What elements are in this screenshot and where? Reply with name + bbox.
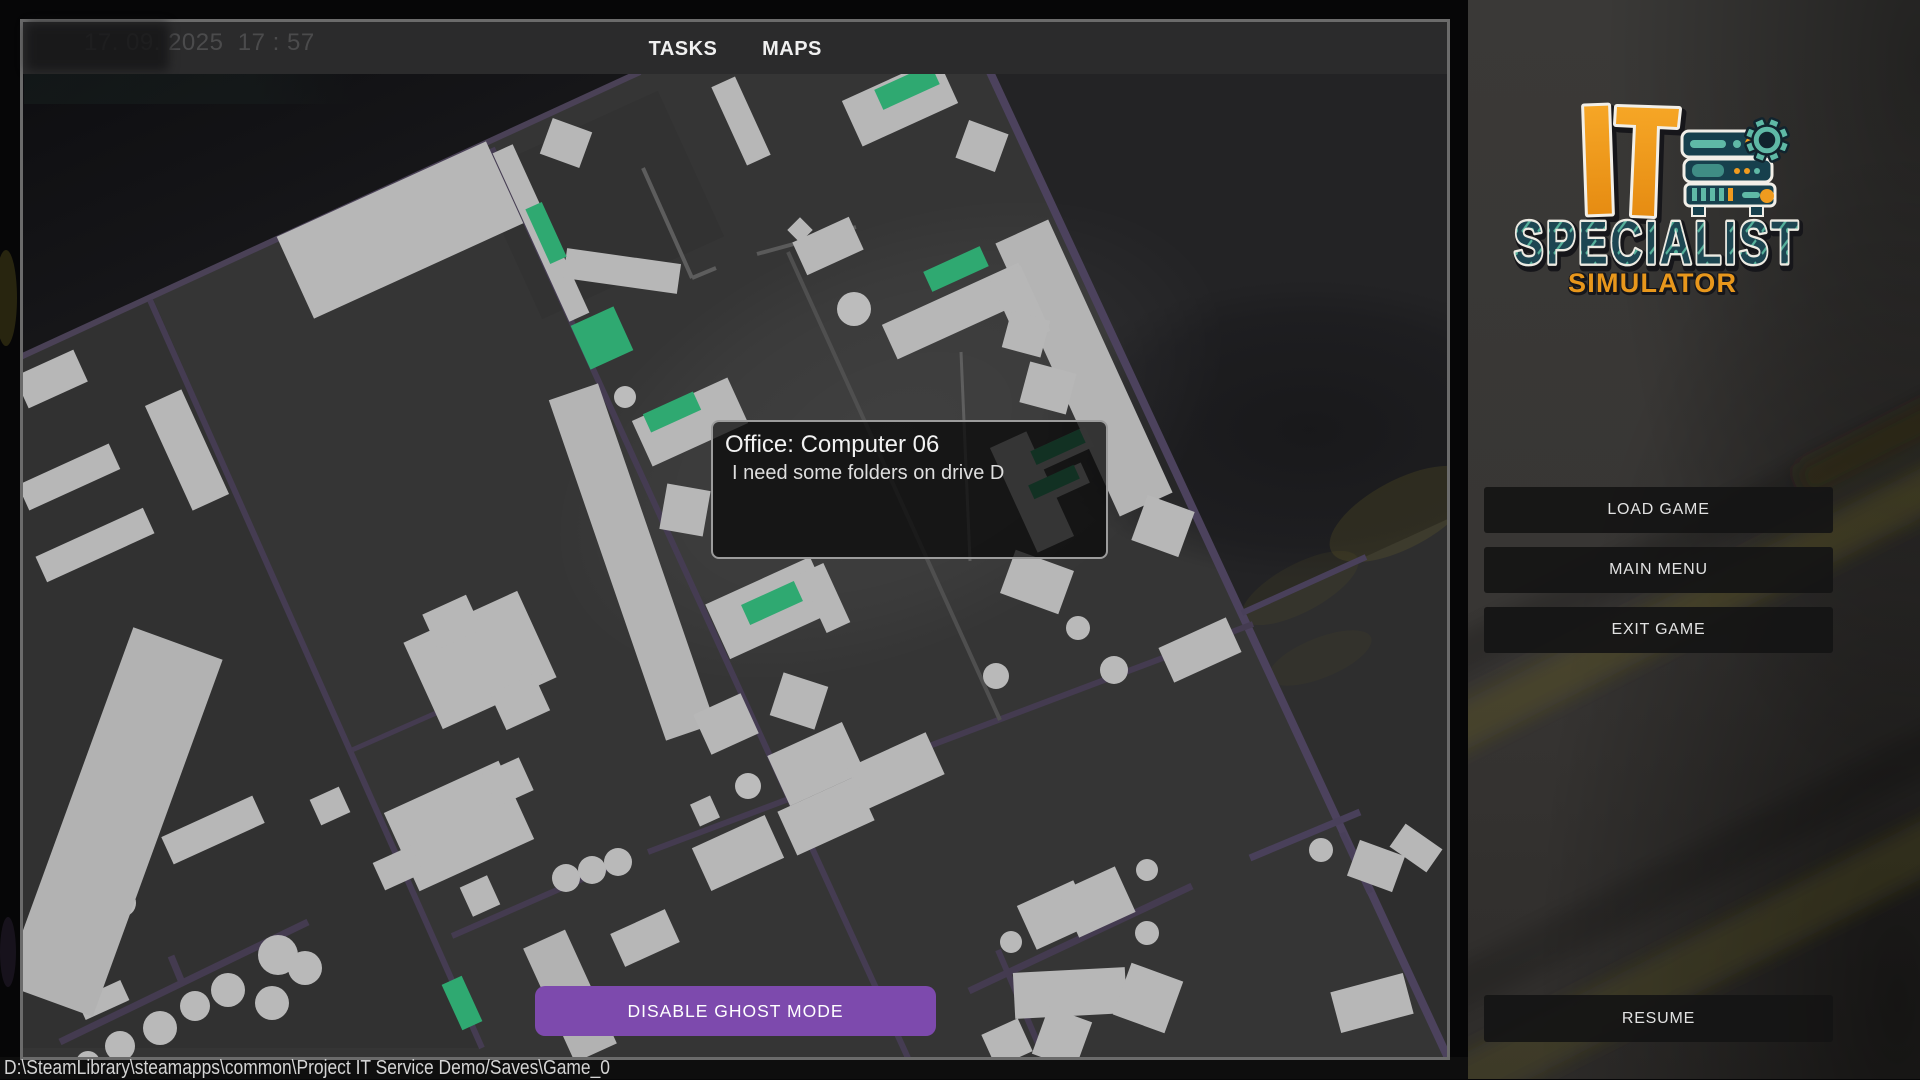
svg-text:D:\SteamLibrary\steamapps\comm: D:\SteamLibrary\steamapps\common\Project…: [4, 1057, 610, 1079]
svg-text:SIMULATOR: SIMULATOR: [1568, 268, 1736, 298]
